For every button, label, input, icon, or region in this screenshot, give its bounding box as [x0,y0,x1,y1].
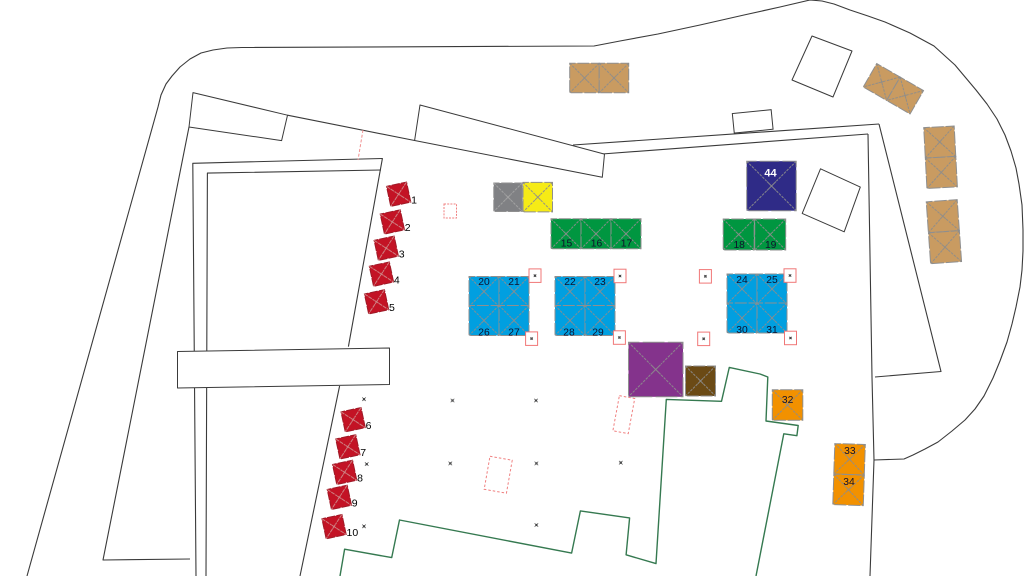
svg-text:24: 24 [736,275,748,286]
svg-text:29: 29 [592,327,604,338]
svg-text:25: 25 [766,275,778,286]
svg-text:2: 2 [405,222,411,234]
svg-text:17: 17 [621,239,633,250]
svg-text:16: 16 [591,239,603,250]
svg-text:19: 19 [765,240,777,251]
svg-text:4: 4 [394,274,400,286]
svg-text:5: 5 [389,302,395,314]
svg-text:15: 15 [561,239,573,250]
svg-text:44: 44 [764,168,777,180]
svg-text:10: 10 [347,527,359,539]
svg-text:21: 21 [508,277,520,288]
svg-text:30: 30 [736,325,748,336]
svg-text:8: 8 [357,473,363,485]
svg-text:3: 3 [399,249,405,261]
svg-text:6: 6 [366,420,372,432]
svg-text:31: 31 [766,325,778,336]
svg-text:20: 20 [478,277,490,288]
svg-text:23: 23 [594,277,606,288]
svg-text:1: 1 [411,195,417,207]
svg-text:26: 26 [478,327,490,338]
svg-text:7: 7 [360,447,366,459]
svg-text:32: 32 [782,395,794,406]
svg-text:33: 33 [844,446,856,457]
svg-text:22: 22 [564,277,576,288]
svg-text:34: 34 [843,477,855,488]
svg-text:28: 28 [563,327,575,338]
svg-text:18: 18 [733,240,745,251]
svg-text:27: 27 [508,327,520,338]
svg-text:9: 9 [352,498,358,510]
